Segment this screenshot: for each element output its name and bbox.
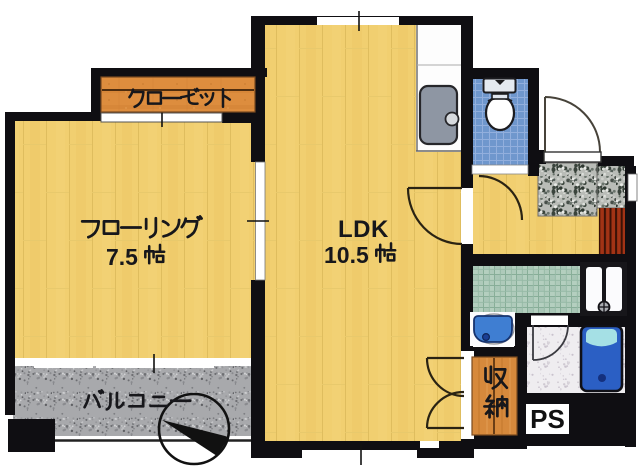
svg-text:7.5: 7.5 (106, 244, 138, 270)
svg-text:LDK: LDK (338, 216, 389, 243)
svg-text:10.5: 10.5 (324, 242, 369, 268)
svg-text:PS: PS (530, 404, 565, 434)
